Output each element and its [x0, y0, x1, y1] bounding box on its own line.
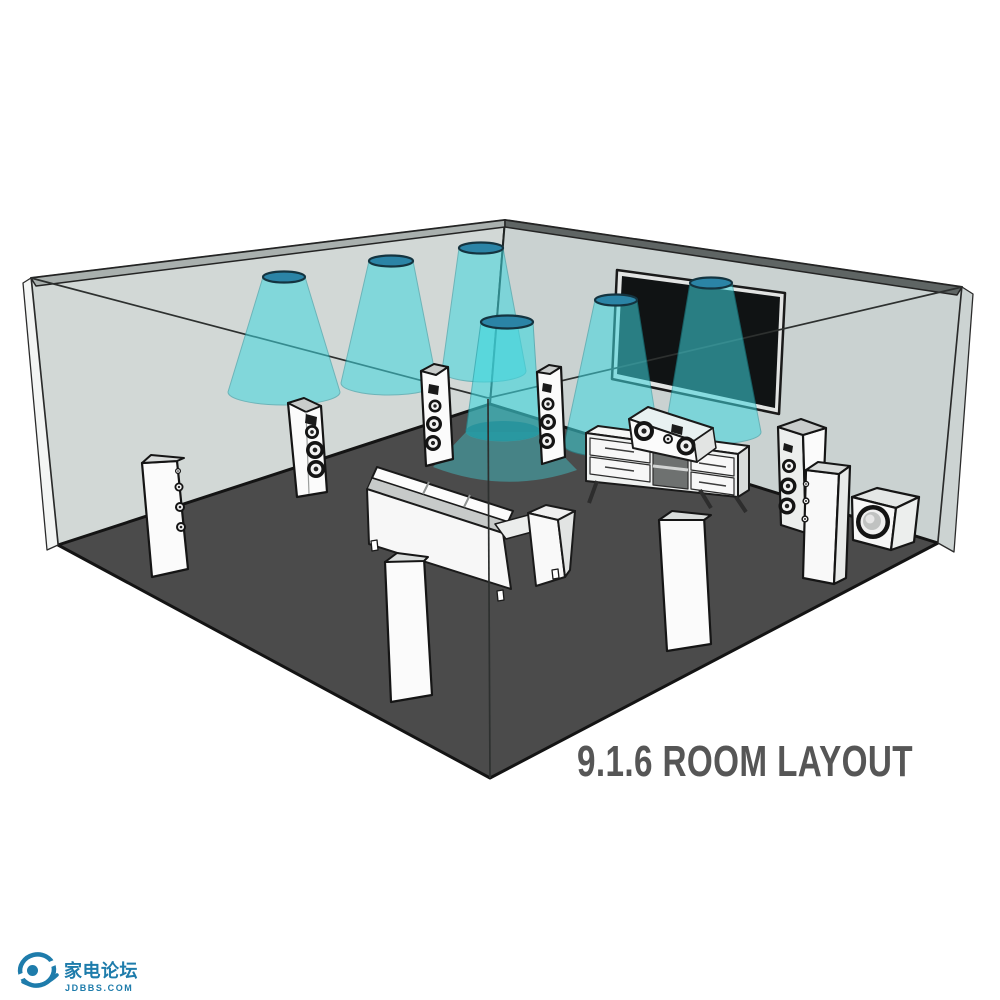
- tower-front-left-driver-3: [425, 435, 441, 451]
- tower-surround-right-driver-2-layer-2: [805, 500, 807, 502]
- tower-front-right-driver-2-layer-2: [786, 484, 790, 488]
- tower-surround-left-driver-2: [175, 502, 185, 512]
- tower-front-right-driver-3-layer-2: [785, 504, 789, 508]
- tower-surround-left-tweeter: [175, 468, 181, 474]
- tower-surround-left-driver-3: [176, 522, 186, 532]
- tower-center-left-driver-3-layer-2: [545, 439, 549, 443]
- ceiling-speaker-2: [369, 256, 413, 267]
- cone4-floor-ellipse: [466, 421, 540, 441]
- center-woofer-right-layer-2: [684, 444, 689, 449]
- ceiling-speaker-5: [595, 295, 637, 306]
- tower-wide-left-driver-2-layer-2: [313, 448, 318, 453]
- room-layout-figure: 9.1.6 ROOM LAYOUT 家电论坛 JDBBS.COM: [0, 0, 1000, 1000]
- tower-front-left-driver-1-layer-2: [433, 404, 436, 407]
- watermark: 家电论坛 JDBBS.COM: [15, 951, 138, 993]
- tower-front-left-driver-2: [426, 416, 442, 432]
- subwoofer-driver-highlight: [866, 515, 875, 524]
- center-woofer-left: [634, 421, 654, 441]
- tower-surround-left-driver-3-layer-2: [180, 526, 183, 529]
- tower-surround-right-driver-1-layer-2: [805, 483, 807, 485]
- ceiling-speaker-3: [459, 243, 503, 254]
- ceiling-speaker-1: [263, 272, 305, 283]
- tower-front-right-driver-1-layer-2: [787, 464, 791, 468]
- tower-wide-left-driver-3-layer-2: [314, 467, 319, 472]
- center-woofer-left-layer-2: [641, 428, 646, 433]
- tower-front-right-driver-1: [782, 459, 796, 473]
- tower-surround-right-driver-3: [801, 515, 808, 522]
- jdbbs-logo-icon: [15, 951, 61, 989]
- watermark-title: 家电论坛: [64, 960, 138, 982]
- tower-rear-left-body: [385, 558, 432, 702]
- tower-center-left-driver-1-layer-2: [546, 402, 549, 405]
- tower-surround-right-driver-1: [803, 481, 809, 487]
- console-side: [738, 446, 749, 497]
- room-layout-svg: 9.1.6 ROOM LAYOUT 家电论坛 JDBBS.COM: [0, 0, 1000, 1000]
- tower-front-right-driver-3: [779, 498, 796, 515]
- tower-surround-right-driver-2: [802, 497, 809, 504]
- tower-surround-left-driver-1: [175, 483, 184, 492]
- tower-surround-right-body: [803, 470, 839, 584]
- tower-surround-left-driver-1-layer-2: [178, 486, 180, 488]
- watermark-subtitle: JDBBS.COM: [65, 983, 133, 993]
- tower-front-left-body: [421, 367, 453, 466]
- tower-surround-right-driver-3-layer-2: [804, 518, 806, 520]
- tower-front-left-driver-1: [429, 400, 442, 413]
- ceiling-speaker-6: [690, 278, 732, 289]
- scene-root: [23, 220, 973, 778]
- logo-dot: [27, 965, 38, 976]
- tower-surround-left-tweeter-layer-2: [177, 470, 179, 472]
- center-woofer-right: [677, 437, 696, 456]
- sofa-foot-2: [497, 590, 504, 601]
- tower-surround-left-driver-2-layer-2: [179, 506, 182, 509]
- tower-rear-right-body: [659, 516, 711, 651]
- tower-front-right-driver-2: [780, 478, 797, 495]
- figure-title: 9.1.6 ROOM LAYOUT: [577, 737, 913, 786]
- sofa-foot-3: [552, 569, 559, 579]
- tower-wide-left-driver-1-layer-2: [310, 430, 314, 434]
- tower-wide-left-driver-3: [307, 460, 325, 478]
- tower-front-left-driver-2-layer-2: [432, 422, 436, 426]
- tower-center-left-driver-2-layer-2: [546, 420, 550, 424]
- tower-wide-left-driver-2: [306, 441, 324, 459]
- tower-center-left-driver-1: [542, 398, 555, 411]
- tower-center-left-driver-3: [539, 433, 555, 449]
- center-tweeter-layer-2: [667, 438, 670, 441]
- tower-wide-left-driver-1: [305, 425, 319, 439]
- ceiling-speaker-4: [481, 316, 533, 329]
- sofa-foot-1: [371, 540, 378, 551]
- tower-front-left-driver-3-layer-2: [431, 441, 435, 445]
- tower-center-left-driver-2: [540, 414, 556, 430]
- center-tweeter: [663, 434, 673, 444]
